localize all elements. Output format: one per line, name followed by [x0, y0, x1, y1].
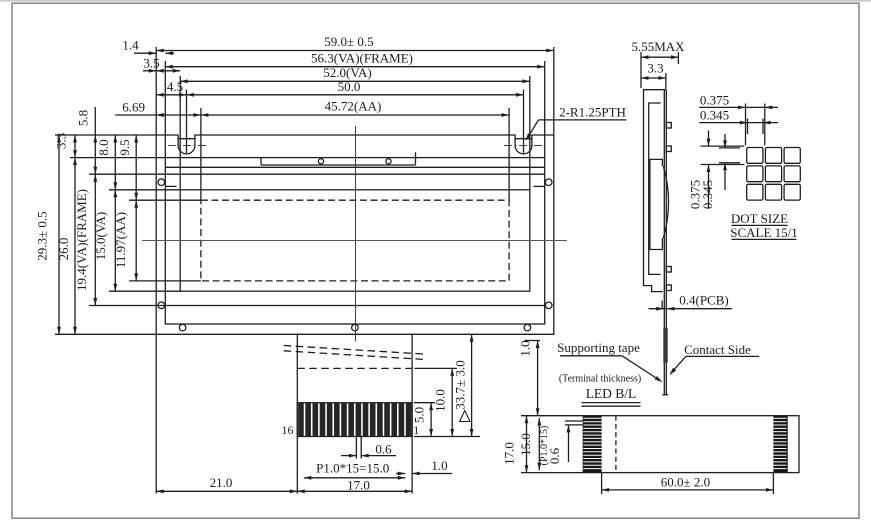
svg-text:2-R1.25PTH: 2-R1.25PTH: [559, 105, 626, 120]
svg-text:15.0(VA): 15.0(VA): [93, 212, 108, 261]
svg-text:1.0: 1.0: [518, 340, 533, 356]
svg-text:(Terminal thickness): (Terminal thickness): [559, 374, 641, 385]
svg-text:60.0± 2.0: 60.0± 2.0: [661, 475, 710, 490]
svg-text:17.0: 17.0: [347, 478, 370, 493]
svg-text:0.6: 0.6: [547, 447, 562, 464]
svg-text:29.3± 0.5: 29.3± 0.5: [35, 211, 50, 260]
svg-text:56.3(VA)(FRAME): 56.3(VA)(FRAME): [311, 51, 413, 66]
svg-text:52.0(VA): 52.0(VA): [323, 65, 372, 80]
svg-text:45.72(AA): 45.72(AA): [325, 99, 382, 114]
svg-text:59.0± 0.5: 59.0± 0.5: [324, 34, 373, 49]
svg-text:15.0: 15.0: [518, 433, 533, 456]
svg-text:10.0: 10.0: [433, 389, 448, 412]
svg-text:5.0: 5.0: [411, 407, 426, 423]
svg-text:33.7± 3.0: 33.7± 3.0: [452, 360, 467, 409]
svg-text:Supporting tape: Supporting tape: [557, 340, 640, 355]
svg-text:26.0: 26.0: [56, 238, 71, 261]
svg-text:5.8: 5.8: [76, 110, 91, 126]
svg-text:LED B/L: LED B/L: [586, 386, 637, 401]
svg-text:3.3: 3.3: [647, 61, 663, 76]
svg-text:0.345: 0.345: [700, 180, 715, 209]
svg-text:P1.0*15=15.0: P1.0*15=15.0: [316, 461, 389, 476]
svg-text:0.4(PCB): 0.4(PCB): [679, 292, 728, 307]
svg-text:3.5: 3.5: [143, 55, 159, 70]
svg-text:6.69: 6.69: [122, 100, 145, 115]
svg-text:9.5: 9.5: [117, 139, 132, 155]
svg-text:19.4(VA)(FRAME): 19.4(VA)(FRAME): [74, 189, 89, 291]
svg-text:3.3: 3.3: [54, 133, 69, 149]
svg-text:0.345: 0.345: [700, 108, 729, 123]
svg-text:Contact Side: Contact Side: [684, 342, 751, 357]
svg-text:16: 16: [282, 423, 294, 437]
svg-text:1: 1: [413, 423, 419, 437]
svg-text:4.5: 4.5: [167, 79, 183, 94]
svg-text:1.4: 1.4: [122, 38, 139, 53]
svg-text:5.55MAX: 5.55MAX: [631, 39, 685, 54]
svg-text:DOT SIZE: DOT SIZE: [731, 211, 788, 226]
svg-text:0.375: 0.375: [700, 92, 729, 107]
svg-text:1.0: 1.0: [431, 458, 447, 473]
svg-text:11.97(AA): 11.97(AA): [113, 212, 128, 268]
svg-text:0.6: 0.6: [375, 442, 392, 457]
svg-text:17.0: 17.0: [502, 442, 517, 465]
svg-text:21.0: 21.0: [210, 475, 233, 490]
svg-text:50.0: 50.0: [338, 79, 361, 94]
svg-text:SCALE 15/1: SCALE 15/1: [730, 225, 798, 240]
svg-text:8.0: 8.0: [96, 139, 111, 155]
